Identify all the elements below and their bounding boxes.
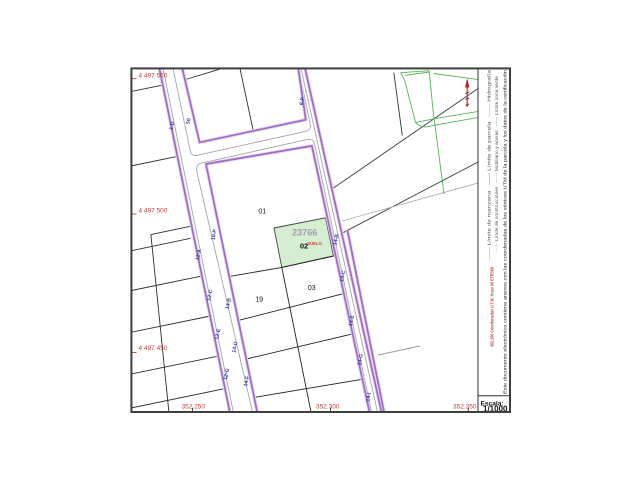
svg-text:14-I: 14-I <box>365 392 373 403</box>
svg-text:—— Límite de construcciones: —— Límite de construcciones —— Mobiliari… <box>494 76 500 252</box>
svg-text:352.350: 352.350 <box>453 404 477 411</box>
svg-text:352.300: 352.300 <box>316 404 340 411</box>
svg-text:14-C: 14-C <box>339 270 347 282</box>
svg-text:14-B: 14-B <box>332 233 340 245</box>
svg-text:—— Límite de manzana —— Lími: —— Límite de manzana —— Límite de parcel… <box>487 70 493 260</box>
svg-text:352.250: 352.250 <box>182 404 206 411</box>
svg-text:12-C: 12-C <box>206 289 214 301</box>
svg-text:10-P: 10-P <box>210 228 218 240</box>
svg-text:4 497 450: 4 497 450 <box>139 345 168 352</box>
svg-text:14-F: 14-F <box>243 375 251 387</box>
svg-text:01: 01 <box>258 208 266 215</box>
svg-text:4 497 550: 4 497 550 <box>139 73 168 80</box>
svg-text:12-E: 12-E <box>214 328 222 340</box>
svg-text:14-E: 14-E <box>348 314 356 326</box>
svg-text:14-B: 14-B <box>225 297 233 309</box>
svg-text:Este documento electrónico con: Este documento electrónico contiene anex… <box>503 70 509 394</box>
svg-text:14-G: 14-G <box>357 354 365 367</box>
svg-text:12-G: 12-G <box>223 368 231 381</box>
svg-text:19: 19 <box>255 297 263 304</box>
svg-text:4 497 500: 4 497 500 <box>139 208 168 215</box>
svg-text:50: 50 <box>185 118 192 125</box>
svg-text:03: 03 <box>308 285 316 292</box>
svg-text:23766: 23766 <box>292 228 317 238</box>
svg-text:SUELO: SUELO <box>307 241 322 246</box>
svg-text:352.200 Coordenadas U.T.M. Hu: 352.200 Coordenadas U.T.M. Huso 30 ETRS8… <box>490 267 495 347</box>
